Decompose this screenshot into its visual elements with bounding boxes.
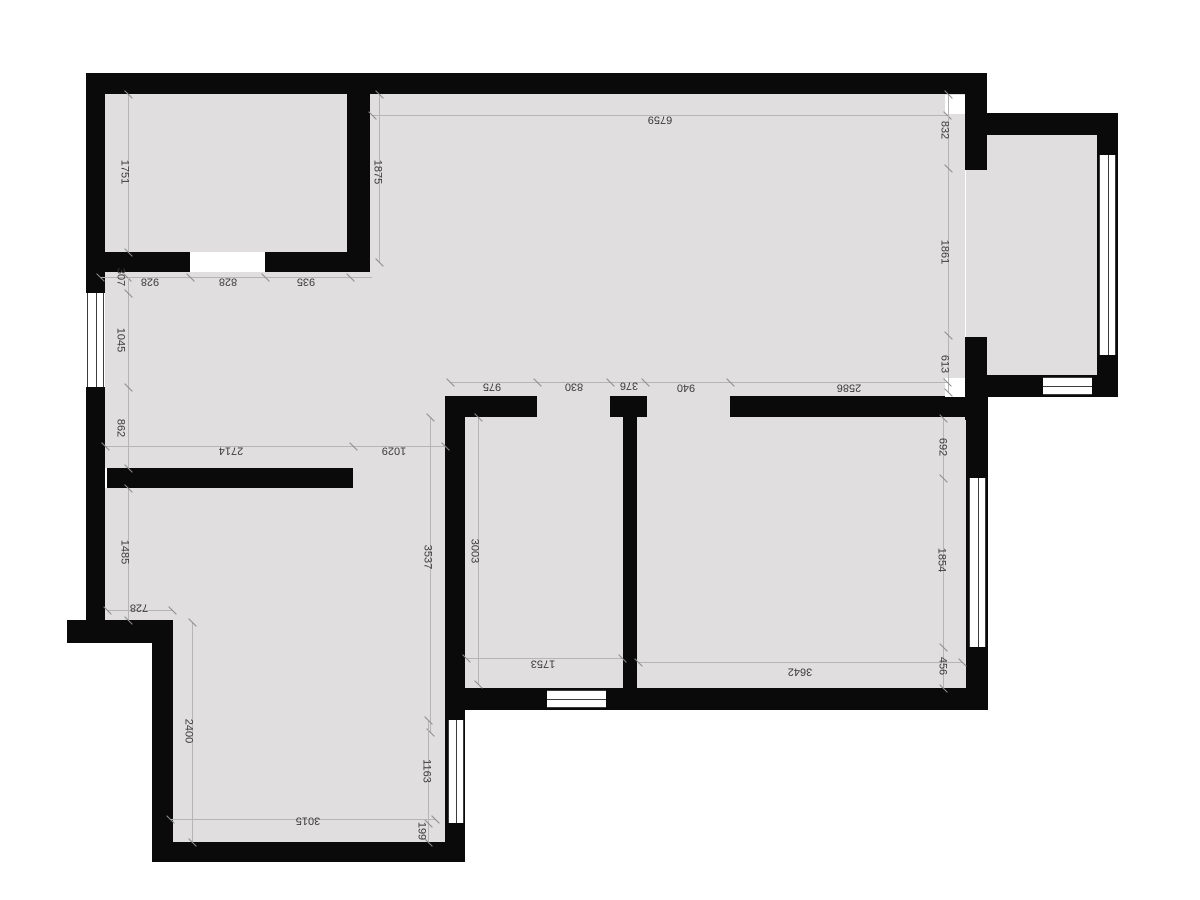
dimension-label: 828 — [219, 276, 237, 287]
dimension-label: 940 — [677, 382, 695, 393]
dimension-label: 2714 — [219, 445, 243, 456]
floor-area — [987, 135, 1097, 375]
window — [969, 478, 986, 647]
dimension-label: 2586 — [837, 382, 861, 393]
dimension-label: 830 — [565, 381, 583, 392]
wall-segment — [67, 620, 173, 643]
floor-area — [353, 468, 445, 488]
dimension-label: 1753 — [531, 658, 555, 669]
dimension-label: 728 — [130, 602, 148, 613]
door-opening — [647, 396, 730, 417]
dimension-label: 199 — [416, 822, 427, 840]
dimension-label: 613 — [939, 355, 950, 373]
dimension-label: 6759 — [648, 114, 672, 125]
dimension-label: 1045 — [115, 328, 126, 352]
dimension-line — [638, 662, 962, 663]
wall-segment — [86, 94, 105, 293]
dimension-label: 456 — [937, 657, 948, 675]
dimension-label: 376 — [620, 380, 638, 391]
floor-area — [370, 94, 965, 396]
dimension-label: 692 — [937, 438, 948, 456]
dimension-label: 1029 — [382, 445, 406, 456]
window — [547, 690, 606, 708]
dimension-label: 3537 — [422, 545, 433, 569]
wall-segment — [107, 468, 353, 488]
dimension-label: 928 — [141, 276, 159, 287]
dimension-label: 3003 — [469, 539, 480, 563]
floor-area — [637, 417, 967, 688]
dimension-label: 1875 — [372, 160, 383, 184]
dimension-label: 935 — [297, 276, 315, 287]
window — [87, 293, 104, 387]
dimension-label: 832 — [939, 121, 950, 139]
dimension-label: 1485 — [119, 540, 130, 564]
wall-segment — [86, 73, 987, 94]
dimension-label: 3015 — [296, 815, 320, 826]
floor-area — [105, 94, 347, 252]
wall-segment — [965, 73, 987, 170]
wall-segment — [152, 842, 465, 862]
dimension-label: 975 — [483, 381, 501, 392]
window — [1099, 155, 1116, 355]
dimension-line — [128, 277, 129, 468]
dimension-label: 1861 — [939, 240, 950, 264]
door-opening — [190, 252, 265, 272]
floor-area — [465, 417, 623, 688]
floor-area — [105, 488, 445, 620]
dimension-label: 1751 — [119, 160, 130, 184]
dimension-label: 3642 — [788, 666, 812, 677]
door-opening — [537, 396, 610, 417]
wall-segment — [86, 387, 105, 643]
wall-segment — [445, 688, 988, 710]
dimension-label: 862 — [115, 419, 126, 437]
floor-area — [173, 620, 445, 842]
wall-segment — [152, 643, 173, 862]
wall-segment — [623, 417, 637, 710]
floor-area — [105, 270, 445, 468]
floor-area — [966, 170, 988, 337]
dimension-label: 2400 — [183, 719, 194, 743]
dimension-label: 307 — [115, 268, 126, 286]
wall-segment — [347, 94, 370, 272]
dimension-label: 1854 — [936, 548, 947, 572]
window — [448, 720, 464, 823]
floor-plan: 6759175118758323079288289351045186186261… — [0, 0, 1200, 900]
window — [1043, 377, 1092, 395]
dimension-line — [450, 382, 947, 383]
dimension-line — [430, 417, 431, 732]
dimension-label: 1163 — [421, 759, 432, 783]
wall-segment — [965, 375, 1118, 397]
